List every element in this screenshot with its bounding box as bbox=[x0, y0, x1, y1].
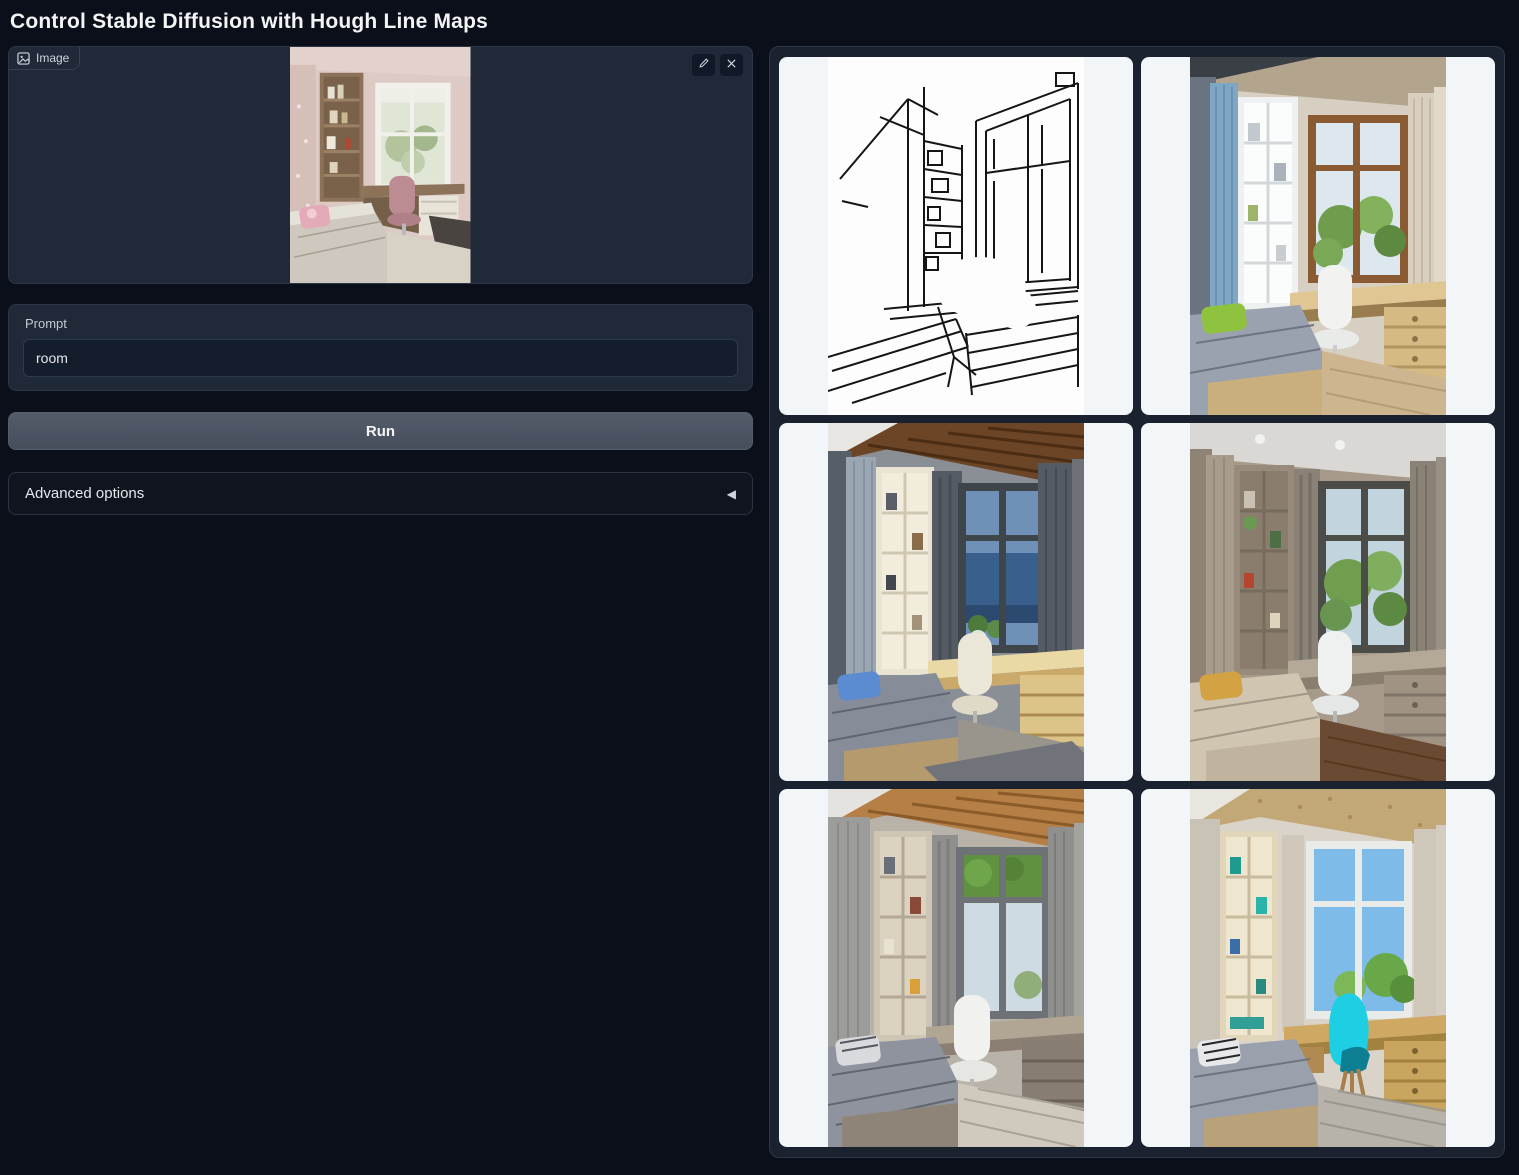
gallery-item-generated-room-1[interactable] bbox=[1141, 57, 1495, 415]
generated-room-1-graphic bbox=[1190, 57, 1446, 415]
input-column: Image bbox=[8, 46, 753, 515]
accordion-collapse-icon: ◀ bbox=[727, 487, 736, 501]
generated-room-4-graphic bbox=[828, 789, 1084, 1147]
clear-image-button[interactable] bbox=[720, 54, 743, 76]
prompt-label: Prompt bbox=[25, 316, 738, 331]
gallery-item-hough-line-map[interactable] bbox=[779, 57, 1133, 415]
page-title: Control Stable Diffusion with Hough Line… bbox=[8, 8, 1505, 46]
edit-image-button[interactable] bbox=[692, 54, 715, 76]
advanced-options-accordion[interactable]: Advanced options ◀ bbox=[8, 472, 753, 515]
run-button[interactable]: Run bbox=[8, 412, 753, 450]
image-label-tab: Image bbox=[9, 47, 80, 70]
hough-line-map-graphic bbox=[828, 57, 1084, 415]
image-upload[interactable]: Image bbox=[8, 46, 753, 284]
gallery-item-generated-room-2[interactable] bbox=[779, 423, 1133, 781]
main-layout: Image bbox=[8, 46, 1505, 1158]
advanced-options-label: Advanced options bbox=[25, 485, 144, 502]
generated-room-3-graphic bbox=[1190, 423, 1446, 781]
output-gallery bbox=[769, 46, 1505, 1158]
uploaded-image[interactable] bbox=[9, 47, 752, 283]
gallery-item-generated-room-3[interactable] bbox=[1141, 423, 1495, 781]
image-actions bbox=[692, 54, 743, 76]
image-icon bbox=[17, 52, 30, 65]
x-icon bbox=[726, 58, 737, 69]
gallery-item-generated-room-5[interactable] bbox=[1141, 789, 1495, 1147]
app-page: Control Stable Diffusion with Hough Line… bbox=[0, 0, 1519, 1168]
generated-room-2-graphic bbox=[828, 423, 1084, 781]
prompt-input[interactable] bbox=[23, 339, 738, 377]
gallery-item-generated-room-4[interactable] bbox=[779, 789, 1133, 1147]
prompt-block: Prompt bbox=[8, 304, 753, 391]
pencil-icon bbox=[698, 57, 710, 69]
generated-room-5-graphic bbox=[1190, 789, 1446, 1147]
image-label: Image bbox=[36, 51, 69, 65]
uploaded-image-graphic bbox=[290, 47, 470, 283]
